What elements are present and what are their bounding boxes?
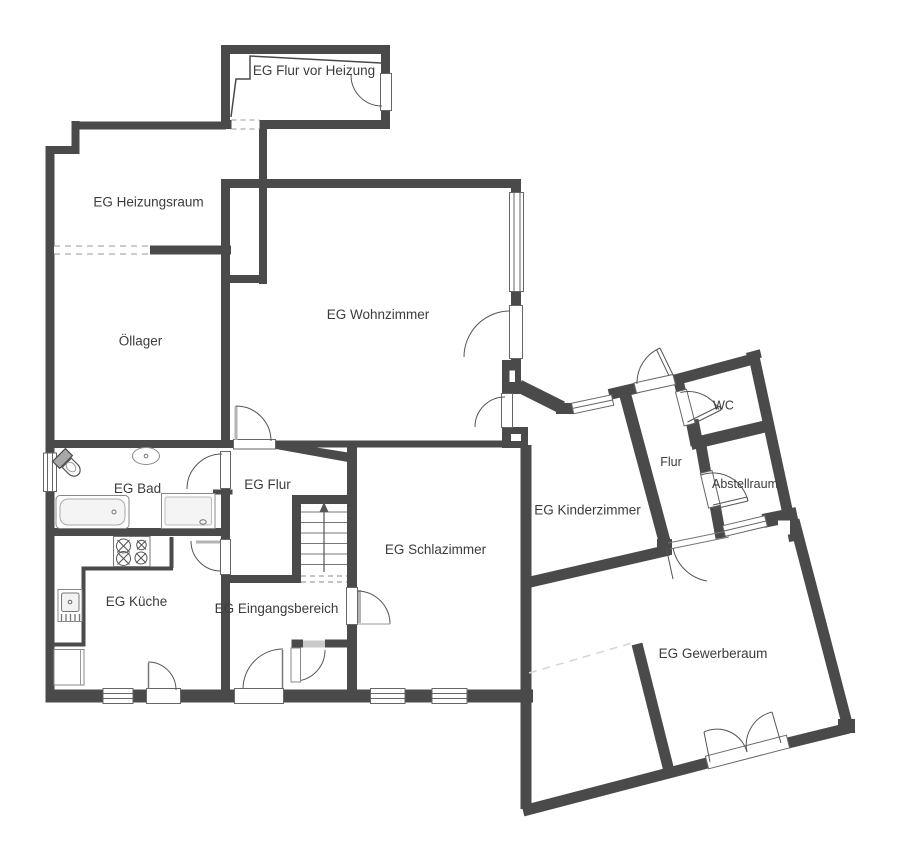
- svg-text:EG Schlazimmer: EG Schlazimmer: [385, 542, 487, 557]
- svg-text:EG Flur vor Heizung: EG Flur vor Heizung: [253, 63, 375, 78]
- svg-text:EG Wohnzimmer: EG Wohnzimmer: [327, 307, 430, 322]
- svg-text:EG Heizungsraum: EG Heizungsraum: [93, 195, 203, 210]
- svg-text:EG Gewerberaum: EG Gewerberaum: [659, 646, 768, 661]
- svg-text:EG Kinderzimmer: EG Kinderzimmer: [534, 503, 641, 518]
- svg-text:EG Bad: EG Bad: [114, 481, 161, 496]
- svg-text:EG Eingangsbereich: EG Eingangsbereich: [215, 601, 339, 616]
- svg-text:Flur: Flur: [660, 455, 682, 469]
- svg-text:Öllager: Öllager: [119, 334, 163, 349]
- svg-text:EG Flur: EG Flur: [244, 477, 291, 492]
- svg-text:Abstellraum: Abstellraum: [712, 477, 778, 491]
- svg-text:EG Küche: EG Küche: [106, 594, 168, 609]
- svg-text:WC: WC: [713, 399, 734, 413]
